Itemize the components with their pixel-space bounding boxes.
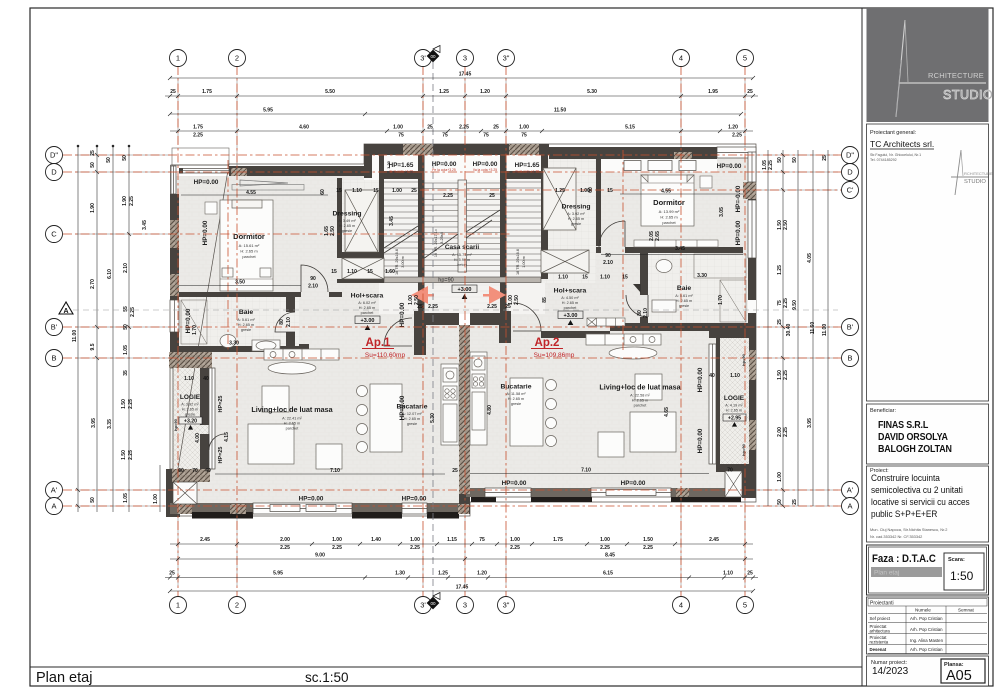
svg-text:1.00: 1.00: [393, 125, 403, 131]
svg-text:60: 60: [320, 189, 326, 195]
svg-text:HP=0.00: HP=0.00: [502, 480, 527, 487]
svg-text:RCHITECTURE: RCHITECTURE: [964, 171, 993, 176]
svg-text:3.95: 3.95: [91, 418, 97, 428]
svg-text:3.95: 3.95: [807, 418, 813, 428]
svg-text:25: 25: [792, 499, 798, 505]
svg-text:HP=0.00: HP=0.00: [399, 302, 406, 327]
svg-text:+2.95: +2.95: [728, 416, 741, 422]
svg-text:Mun. Cluj Napoca, Str.Nichita: Mun. Cluj Napoca, Str.Nichita Stanescu, …: [870, 527, 947, 532]
svg-text:gresie: gresie: [342, 229, 352, 233]
svg-text:+3.00: +3.00: [458, 287, 472, 293]
svg-text:1.00 m: 1.00 m: [522, 256, 526, 268]
svg-text:2: 2: [235, 601, 239, 610]
svg-text:parchet: parchet: [242, 254, 256, 259]
svg-text:2.10: 2.10: [286, 317, 292, 327]
svg-text:2.10: 2.10: [308, 284, 318, 290]
svg-text:1.20: 1.20: [728, 125, 738, 131]
svg-text:15: 15: [582, 275, 588, 281]
svg-text:15: 15: [367, 269, 373, 275]
svg-text:1.05: 1.05: [123, 345, 129, 355]
svg-text:gresie: gresie: [241, 328, 251, 332]
svg-text:18 TR. 29x16.6: 18 TR. 29x16.6: [395, 249, 399, 275]
svg-text:H: 5.90 m: H: 5.90 m: [454, 258, 470, 262]
svg-text:A: 15.74 m²: A: 15.74 m²: [452, 253, 472, 257]
svg-text:Proiectant general:: Proiectant general:: [870, 130, 917, 136]
svg-text:4.55: 4.55: [661, 189, 671, 195]
svg-text:25: 25: [427, 125, 433, 131]
svg-text:1.25: 1.25: [777, 265, 783, 275]
svg-text:2.25: 2.25: [129, 196, 135, 206]
svg-text:3.45: 3.45: [142, 220, 148, 230]
svg-text:H: 2.65 m: H: 2.65 m: [562, 301, 578, 305]
svg-text:4.05: 4.05: [807, 253, 813, 263]
svg-text:HP=25: HP=25: [218, 396, 224, 413]
svg-text:LOGIE: LOGIE: [724, 395, 745, 402]
svg-text:locative si servicii cu acces: locative si servicii cu acces: [871, 497, 970, 507]
svg-text:A: A: [847, 502, 852, 511]
svg-text:2.65: 2.65: [655, 231, 661, 241]
svg-text:40: 40: [205, 468, 211, 474]
svg-text:A: 15.61 m²: A: 15.61 m²: [239, 243, 260, 248]
svg-text:Dressing: Dressing: [561, 204, 590, 211]
svg-text:C: C: [51, 230, 57, 239]
svg-text:HP=0.00: HP=0.00: [399, 395, 406, 420]
svg-text:B': B': [847, 323, 854, 332]
svg-text:A: A: [63, 308, 68, 315]
svg-text:HP=0.00: HP=0.00: [202, 220, 209, 245]
svg-text:A': A': [51, 486, 58, 495]
svg-text:1.00: 1.00: [410, 537, 420, 543]
svg-text:+3.00: +3.00: [564, 313, 578, 319]
svg-text:25: 25: [489, 193, 495, 199]
svg-text:semicolectiva cu 2 unitati: semicolectiva cu 2 unitati: [871, 485, 963, 495]
svg-text:HP=0.00: HP=0.00: [432, 161, 457, 168]
svg-text:3.30: 3.30: [697, 273, 707, 279]
svg-text:1.10: 1.10: [347, 269, 357, 275]
svg-text:H: 2.65 m: H: 2.65 m: [676, 299, 692, 303]
svg-text:A: 4.19 m²: A: 4.19 m²: [725, 404, 743, 408]
svg-text:17.45: 17.45: [456, 585, 469, 591]
svg-text:2.25: 2.25: [600, 545, 610, 551]
svg-text:1.20: 1.20: [386, 160, 391, 169]
svg-text:parchet: parchet: [286, 427, 300, 431]
svg-text:7.10: 7.10: [330, 468, 340, 474]
svg-text:1.75: 1.75: [553, 537, 563, 543]
svg-text:1.00: 1.00: [777, 472, 783, 482]
svg-text:25: 25: [747, 89, 753, 95]
svg-text:18 TR. 29x16.6: 18 TR. 29x16.6: [516, 249, 520, 275]
svg-text:50: 50: [90, 497, 96, 503]
svg-text:5: 5: [743, 54, 747, 63]
svg-text:9.50: 9.50: [792, 300, 798, 310]
svg-text:3': 3': [420, 601, 426, 610]
svg-text:sc.1:50: sc.1:50: [305, 670, 349, 685]
svg-text:25: 25: [411, 188, 417, 194]
svg-text:50: 50: [106, 157, 112, 163]
svg-text:70: 70: [727, 468, 733, 474]
svg-text:H: 2.65 m: H: 2.65 m: [726, 409, 742, 413]
svg-text:HP=0.00: HP=0.00: [697, 367, 704, 392]
svg-text:H: 2.65 m: H: 2.65 m: [632, 399, 648, 403]
svg-text:1.30: 1.30: [395, 571, 405, 577]
svg-text:Desenat: Desenat: [870, 647, 887, 652]
svg-text:11.00: 11.00: [822, 324, 828, 336]
svg-text:3: 3: [463, 54, 467, 63]
svg-text:25: 25: [169, 571, 175, 577]
svg-text:1.20: 1.20: [477, 571, 487, 577]
svg-text:1.95: 1.95: [708, 89, 718, 95]
svg-text:00: 00: [430, 54, 436, 59]
svg-text:75: 75: [398, 133, 404, 139]
svg-text:H: 2.65 m: H: 2.65 m: [508, 397, 524, 401]
svg-text:H: 2.65 m: H: 2.65 m: [240, 249, 258, 254]
svg-text:2.25: 2.25: [130, 307, 136, 317]
svg-text:8.45: 8.45: [605, 553, 615, 559]
svg-text:25: 25: [493, 125, 499, 131]
svg-text:5.15: 5.15: [625, 125, 635, 131]
svg-text:Scara:: Scara:: [948, 557, 965, 563]
svg-text:Faza : D.T.A.C: Faza : D.T.A.C: [872, 552, 936, 565]
svg-text:Nr. cad.353342 Nr. CF.353342: Nr. cad.353342 Nr. CF.353342: [870, 534, 922, 539]
svg-text:25: 25: [90, 150, 96, 156]
svg-text:2.25: 2.25: [128, 450, 134, 460]
svg-text:9.5: 9.5: [90, 343, 96, 350]
svg-text:Ap.1: Ap.1: [366, 337, 392, 349]
svg-text:75: 75: [483, 133, 489, 139]
svg-text:5.50: 5.50: [325, 89, 335, 95]
svg-text:HP=1.65: HP=1.65: [389, 162, 414, 169]
svg-text:2.25: 2.25: [443, 193, 453, 199]
svg-text:4.60: 4.60: [299, 125, 309, 131]
svg-text:parchet: parchet: [564, 306, 578, 310]
svg-text:H: 2.65 m: H: 2.65 m: [238, 323, 254, 327]
svg-text:public S+P+E+ER: public S+P+E+ER: [871, 509, 937, 519]
svg-text:40: 40: [203, 376, 209, 382]
svg-text:1.75: 1.75: [193, 125, 203, 131]
svg-text:15: 15: [607, 188, 613, 194]
svg-text:2.25: 2.25: [410, 545, 420, 551]
svg-text:2.10: 2.10: [603, 260, 613, 266]
svg-text:3.45: 3.45: [675, 246, 685, 252]
svg-text:6.10: 6.10: [107, 269, 113, 279]
svg-text:Pe la cota+3.25: Pe la cota+3.25: [432, 168, 456, 172]
svg-text:3": 3": [503, 601, 510, 610]
svg-text:HP=0.00: HP=0.00: [735, 220, 742, 245]
svg-text:50: 50: [123, 324, 129, 330]
svg-text:4: 4: [679, 54, 683, 63]
svg-text:HP=25: HP=25: [218, 447, 224, 464]
svg-text:parchet: parchet: [634, 404, 648, 408]
svg-text:25: 25: [747, 571, 753, 577]
svg-text:1.10: 1.10: [352, 188, 362, 194]
svg-text:1.70: 1.70: [192, 325, 198, 335]
svg-text:2.50: 2.50: [783, 220, 789, 230]
svg-text:15: 15: [336, 188, 342, 194]
svg-text:25: 25: [777, 319, 783, 325]
svg-text:B: B: [847, 354, 852, 363]
svg-text:B: B: [51, 354, 56, 363]
svg-text:2.45: 2.45: [200, 537, 210, 543]
svg-text:A: 22.41 m²: A: 22.41 m²: [282, 417, 302, 421]
svg-text:50: 50: [777, 499, 783, 505]
svg-text:1.50: 1.50: [643, 537, 653, 543]
svg-text:Str.Fagului, Nr. Ghiocelului,: Str.Fagului, Nr. Ghiocelului, Nr.1: [870, 153, 921, 157]
svg-text:de la cota +3.25: de la cota +3.25: [389, 170, 413, 174]
svg-text:3.30: 3.30: [229, 341, 239, 347]
svg-text:Arh. Pop Cristian: Arh. Pop Cristian: [910, 616, 943, 621]
svg-text:3.00 m: 3.00 m: [401, 256, 405, 268]
svg-text:1.05: 1.05: [123, 493, 129, 503]
svg-text:50: 50: [792, 157, 798, 163]
svg-text:55: 55: [123, 306, 129, 312]
svg-text:gresie: gresie: [185, 413, 195, 417]
svg-text:H: 2.65 m: H: 2.65 m: [339, 224, 355, 228]
svg-text:Dormitor: Dormitor: [233, 232, 265, 241]
svg-text:A: 11.58 m²: A: 11.58 m²: [506, 392, 526, 396]
svg-text:70: 70: [192, 468, 198, 474]
svg-text:3': 3': [420, 54, 426, 63]
svg-text:5.30: 5.30: [430, 413, 436, 423]
svg-text:Sef proiect: Sef proiect: [870, 616, 891, 621]
svg-text:A: 5.61 m²: A: 5.61 m²: [675, 294, 693, 298]
svg-text:1.60: 1.60: [385, 269, 395, 275]
svg-text:2.10: 2.10: [643, 308, 649, 318]
svg-text:2.50: 2.50: [514, 295, 520, 305]
svg-text:15: 15: [331, 269, 337, 275]
svg-text:A: 3.92 m²: A: 3.92 m²: [181, 403, 199, 407]
svg-text:19 TR. 29x17.1=: 19 TR. 29x17.1=: [434, 228, 438, 257]
svg-text:1.50: 1.50: [121, 450, 127, 460]
svg-text:5.30: 5.30: [587, 89, 597, 95]
svg-text:5.95: 5.95: [263, 108, 273, 114]
svg-text:Plan etaj: Plan etaj: [874, 570, 899, 577]
svg-text:3.05: 3.05: [719, 207, 725, 217]
svg-text:50: 50: [122, 155, 128, 161]
svg-text:HP=0.00: HP=0.00: [473, 161, 498, 168]
svg-text:2.70: 2.70: [90, 279, 96, 289]
svg-text:1.50: 1.50: [121, 399, 127, 409]
svg-text:+3.00: +3.00: [361, 318, 375, 324]
svg-text:1: 1: [176, 54, 180, 63]
svg-text:A: 13.99 m²: A: 13.99 m²: [659, 209, 680, 214]
svg-text:H: 2.65 m: H: 2.65 m: [284, 422, 300, 426]
svg-text:2.25: 2.25: [459, 125, 469, 131]
svg-text:Semnat: Semnat: [958, 608, 975, 613]
svg-text:2.50: 2.50: [414, 295, 420, 305]
svg-text:00: 00: [430, 601, 436, 606]
svg-text:DAVID ORSOLYA: DAVID ORSOLYA: [878, 431, 948, 443]
svg-text:1:50: 1:50: [950, 569, 974, 583]
svg-text:50: 50: [90, 162, 96, 168]
svg-text:2.45: 2.45: [709, 537, 719, 543]
svg-text:HP=-0.00: HP=-0.00: [735, 185, 742, 212]
svg-text:+3.20: +3.20: [184, 419, 197, 425]
svg-text:1.10: 1.10: [723, 571, 733, 577]
svg-text:Proiectanti: Proiectanti: [870, 601, 894, 607]
svg-text:hp=90: hp=90: [173, 418, 178, 430]
svg-text:3: 3: [463, 601, 467, 610]
svg-text:14/2023: 14/2023: [872, 666, 909, 677]
svg-text:1.25: 1.25: [439, 89, 449, 95]
svg-text:2.25: 2.25: [783, 427, 789, 437]
svg-text:1.25: 1.25: [555, 188, 565, 194]
svg-text:Numele: Numele: [915, 608, 931, 613]
svg-text:75: 75: [442, 133, 448, 139]
svg-text:LOGIE: LOGIE: [180, 394, 201, 401]
svg-text:H: 2.65 m: H: 2.65 m: [568, 217, 584, 221]
svg-text:6.15: 6.15: [603, 571, 613, 577]
svg-text:HP=0.00: HP=0.00: [185, 308, 192, 333]
svg-text:rezistenta: rezistenta: [870, 640, 889, 645]
svg-text:1.90: 1.90: [90, 203, 96, 213]
svg-text:3.45: 3.45: [389, 216, 395, 226]
svg-text:1.25: 1.25: [438, 571, 448, 577]
svg-text:STUDIO: STUDIO: [964, 179, 986, 185]
svg-text:Bucatarie: Bucatarie: [501, 384, 532, 391]
svg-text:2.25: 2.25: [783, 370, 789, 380]
svg-text:3.50: 3.50: [235, 280, 245, 286]
svg-text:2.25: 2.25: [428, 304, 438, 310]
svg-text:1.00: 1.00: [519, 125, 529, 131]
svg-text:4.15: 4.15: [224, 432, 230, 442]
svg-text:Construire locuinta: Construire locuinta: [871, 473, 940, 483]
svg-text:1.40: 1.40: [371, 537, 381, 543]
svg-text:30.40: 30.40: [786, 324, 792, 337]
svg-text:5: 5: [743, 601, 747, 610]
svg-text:25: 25: [170, 89, 176, 95]
svg-text:1.10: 1.10: [184, 376, 194, 382]
svg-text:1.00: 1.00: [510, 537, 520, 543]
svg-text:60: 60: [588, 187, 594, 193]
svg-text:90: 90: [310, 276, 316, 282]
svg-text:RCHITECTURE: RCHITECTURE: [928, 71, 984, 80]
svg-text:2.25: 2.25: [128, 399, 134, 409]
svg-text:gresie: gresie: [407, 422, 417, 426]
svg-text:TC Architects srl.: TC Architects srl.: [870, 139, 934, 149]
svg-text:2: 2: [235, 54, 239, 63]
svg-text:H: 2.65 m: H: 2.65 m: [359, 306, 375, 310]
svg-text:gresie: gresie: [679, 304, 689, 308]
svg-text:9.00: 9.00: [315, 553, 325, 559]
svg-text:1.10: 1.10: [730, 373, 740, 379]
svg-text:17.45: 17.45: [459, 72, 472, 78]
svg-text:25: 25: [822, 155, 828, 161]
svg-text:1.00: 1.00: [332, 537, 342, 543]
svg-text:D": D": [846, 151, 854, 160]
svg-text:1.20: 1.20: [480, 89, 490, 95]
svg-text:11.00: 11.00: [72, 330, 78, 342]
svg-text:25: 25: [452, 468, 458, 474]
svg-text:H: 2.65 m: H: 2.65 m: [660, 215, 678, 220]
svg-text:85: 85: [542, 297, 548, 303]
svg-text:3": 3": [503, 54, 510, 63]
svg-text:1.70: 1.70: [718, 295, 724, 305]
svg-text:2.25: 2.25: [732, 133, 742, 139]
svg-text:de la cota +3.25: de la cota +3.25: [515, 170, 539, 174]
svg-text:FINAS S.R.L: FINAS S.R.L: [878, 419, 928, 431]
svg-text:2.00: 2.00: [280, 537, 290, 543]
svg-text:parchet: parchet: [361, 311, 375, 315]
svg-text:1.10: 1.10: [600, 275, 610, 281]
svg-text:7.10: 7.10: [581, 468, 591, 474]
svg-text:hp=90: hp=90: [438, 278, 453, 284]
svg-text:35: 35: [123, 370, 129, 376]
svg-text:1.10: 1.10: [558, 275, 568, 281]
svg-text:A: 6.02 m²: A: 6.02 m²: [358, 301, 376, 305]
svg-text:2.25: 2.25: [768, 160, 774, 170]
svg-text:A: 3.92 m²: A: 3.92 m²: [567, 212, 585, 216]
svg-text:4.65: 4.65: [664, 407, 670, 417]
svg-text:parchet: parchet: [662, 220, 676, 225]
svg-text:HP=0.00: HP=0.00: [621, 480, 646, 487]
svg-text:Living+loc de luat masa: Living+loc de luat masa: [599, 383, 681, 392]
svg-text:Beneficiar:: Beneficiar:: [870, 408, 896, 414]
svg-text:1.00: 1.00: [600, 537, 610, 543]
svg-text:A05: A05: [946, 668, 972, 684]
svg-text:STUDIO: STUDIO: [943, 88, 993, 102]
svg-text:50: 50: [777, 157, 783, 163]
svg-text:1.90: 1.90: [122, 196, 128, 206]
svg-text:75: 75: [521, 133, 527, 139]
svg-text:4.00: 4.00: [195, 433, 201, 443]
svg-text:HP=0.00: HP=0.00: [697, 428, 704, 453]
svg-text:BALOGH ZOLTAN: BALOGH ZOLTAN: [878, 443, 952, 455]
svg-text:15: 15: [622, 275, 628, 281]
svg-text:HP=0.00: HP=0.00: [299, 496, 324, 503]
svg-text:5.95: 5.95: [273, 571, 283, 577]
svg-text:2.25: 2.25: [332, 545, 342, 551]
svg-text:C': C': [847, 186, 854, 195]
svg-text:1.15: 1.15: [447, 537, 457, 543]
svg-text:B': B': [51, 323, 58, 332]
svg-text:HP=1.65: HP=1.65: [515, 162, 540, 169]
svg-text:Arh. Pop Cristian: Arh. Pop Cristian: [910, 647, 943, 652]
svg-text:D: D: [847, 168, 853, 177]
svg-text:15: 15: [373, 188, 379, 194]
svg-text:11.60: 11.60: [810, 322, 816, 334]
svg-text:Dormitor: Dormitor: [653, 198, 685, 207]
svg-text:Tel. 0744185292: Tel. 0744185292: [870, 158, 897, 162]
svg-text:D": D": [50, 151, 58, 160]
svg-text:3.35: 3.35: [107, 419, 113, 429]
svg-text:4: 4: [679, 601, 683, 610]
svg-text:11.50: 11.50: [554, 108, 566, 114]
svg-text:HP=0.00: HP=0.00: [717, 163, 742, 170]
svg-text:40: 40: [709, 373, 715, 379]
svg-text:Va la cota +3.25: Va la cota +3.25: [473, 168, 497, 172]
svg-text:1: 1: [176, 601, 180, 610]
svg-text:2.25: 2.25: [487, 304, 497, 310]
svg-text:A: 5.61 m²: A: 5.61 m²: [237, 318, 255, 322]
svg-text:2.25: 2.25: [783, 298, 789, 308]
svg-text:2.25: 2.25: [510, 545, 520, 551]
svg-text:A: 22.58 m²: A: 22.58 m²: [630, 394, 650, 398]
svg-text:Casa scarii: Casa scarii: [445, 244, 480, 251]
svg-text:A: 3.49 m²: A: 3.49 m²: [338, 219, 356, 223]
svg-text:90: 90: [605, 253, 611, 259]
svg-text:75: 75: [479, 537, 485, 543]
svg-text:Plan etaj: Plan etaj: [36, 670, 92, 686]
svg-text:A': A': [847, 486, 854, 495]
svg-text:2.10: 2.10: [123, 263, 129, 273]
svg-text:Arh. Pop Cristian: Arh. Pop Cristian: [910, 627, 943, 632]
svg-text:A: A: [51, 502, 56, 511]
svg-text:1.00: 1.00: [153, 494, 159, 504]
svg-text:Living+loc de luat masa: Living+loc de luat masa: [251, 405, 333, 414]
svg-text:HP=0.00: HP=0.00: [194, 179, 219, 186]
svg-text:2.25: 2.25: [193, 133, 203, 139]
svg-text:4.80: 4.80: [487, 405, 493, 415]
